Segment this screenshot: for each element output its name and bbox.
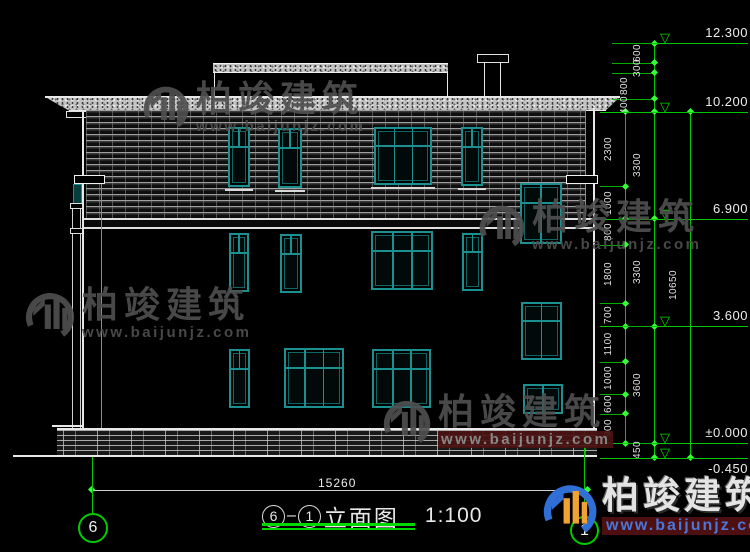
middle-chain-tick (650, 59, 657, 66)
chimney-cap (477, 54, 509, 63)
duct-teal-panel (73, 184, 82, 205)
title-underline-1 (262, 523, 415, 526)
window-sill (458, 188, 486, 190)
window-mullion (541, 304, 543, 358)
window-mullion (472, 235, 474, 251)
window (461, 127, 483, 186)
axis-line-left (92, 457, 93, 514)
level-value: -0.450 (684, 461, 748, 476)
window-mullion (392, 233, 394, 288)
middle-chain-value: 400 (619, 65, 631, 145)
window-mullion (286, 367, 342, 369)
watermark-top: 柏竣建筑 www.baijunjz.com (140, 80, 365, 135)
window-mullion (304, 350, 306, 406)
watermark-url: www.baijunjz.com (196, 118, 365, 135)
cad-elevation-drawing: 2300100080018007001100100060090060030080… (0, 0, 750, 552)
watermark-url: www.baijunjz.com (438, 431, 613, 448)
window-mullion (463, 146, 481, 148)
level-triangle-icon: ▽ (660, 32, 670, 43)
watermark-name: 柏竣建筑 (532, 198, 701, 236)
window-mullion (231, 368, 248, 370)
window-mullion (394, 129, 396, 183)
inner-chain-tick (621, 410, 628, 417)
watermark-name: 柏竣建筑 (196, 80, 365, 118)
window-mullion (290, 236, 292, 253)
watermark-url: www.baijunjz.com (532, 236, 701, 253)
window (284, 348, 344, 408)
level-value: 3.600 (684, 308, 748, 323)
middle-chain-guide (600, 326, 654, 327)
window-mullion (374, 368, 429, 370)
brand-logo-icon (540, 477, 598, 543)
level-triangle-icon: ▽ (660, 432, 670, 443)
watermark-logo-icon (380, 393, 434, 451)
chimney-right-line (500, 62, 501, 97)
window-mullion (230, 146, 248, 148)
roof-deck-band (213, 63, 448, 73)
right-canopy (566, 175, 598, 184)
watermark-logo-icon (22, 286, 78, 344)
inner-chain-tick (621, 300, 628, 307)
window (278, 128, 302, 188)
title-underline-2 (262, 528, 415, 531)
window-mullion (231, 252, 247, 254)
brand-name: 柏竣建筑 (602, 477, 750, 515)
title-scale: 1:100 (425, 504, 483, 528)
window-mullion (373, 250, 431, 252)
window (521, 302, 562, 360)
middle-chain-value: 3300 (632, 125, 644, 205)
window-mullion (412, 129, 414, 183)
brand-logo: 柏竣建筑 www.baijunjz.com (540, 477, 750, 543)
middle-chain-tick (650, 95, 657, 102)
duct-bracket-lower (70, 228, 83, 234)
watermark-right: 柏竣建筑 www.baijunjz.com (476, 198, 701, 254)
window (229, 349, 250, 408)
axis-circle-left-label: 6 (89, 519, 98, 537)
watermark-name: 柏竣建筑 (438, 393, 613, 431)
level-value: ±0.000 (684, 425, 748, 440)
window (374, 127, 432, 185)
wall-left-edge (82, 112, 84, 428)
window-sill (275, 190, 305, 192)
window (280, 234, 302, 293)
watermark-logo-icon (140, 80, 192, 134)
level-value: 10.200 (684, 94, 748, 109)
middle-chain-value: 300 (632, 28, 644, 108)
window-sill (225, 189, 253, 191)
plinth-left-step (52, 425, 84, 427)
ground-line (13, 455, 597, 457)
window-mullion (280, 147, 300, 149)
outer-chain-line (690, 112, 691, 458)
level-triangle-icon: ▽ (660, 447, 670, 458)
wall-right-edge (593, 108, 595, 428)
level-triangle-icon: ▽ (660, 315, 670, 326)
watermark-name: 柏竣建筑 (82, 286, 251, 324)
window-mullion (471, 129, 473, 146)
watermark-left: 柏竣建筑 www.baijunjz.com (22, 286, 251, 344)
watermark-bottom: 柏竣建筑 www.baijunjz.com (380, 393, 613, 451)
duct-bracket-upper (70, 203, 83, 209)
window-mullion (238, 235, 240, 252)
axis-circle-left: 6 (78, 513, 108, 543)
chimney-left-line (484, 62, 485, 97)
window-mullion (239, 351, 241, 368)
bottom-dim-value: 15260 (318, 476, 356, 490)
inner-chain-tick (621, 391, 628, 398)
brand-url: www.baijunjz.com (602, 517, 750, 535)
bottom-dim-line (92, 490, 588, 491)
inner-chain-tick (621, 183, 628, 190)
window-mullion (282, 253, 300, 255)
watermark-logo-icon (476, 198, 528, 254)
level-triangle-icon: ▽ (660, 101, 670, 112)
middle-chain-tick (650, 69, 657, 76)
window (228, 127, 250, 187)
left-canopy (74, 175, 105, 184)
window-mullion (411, 233, 413, 288)
level-value: 12.300 (684, 25, 748, 40)
watermark-url: www.baijunjz.com (82, 324, 251, 341)
window-mullion (376, 145, 430, 147)
inner-chain-tick (621, 358, 628, 365)
window-mullion (323, 350, 325, 406)
window (371, 231, 433, 290)
roof-deck-support-right (447, 71, 448, 97)
window-sill (371, 187, 435, 189)
